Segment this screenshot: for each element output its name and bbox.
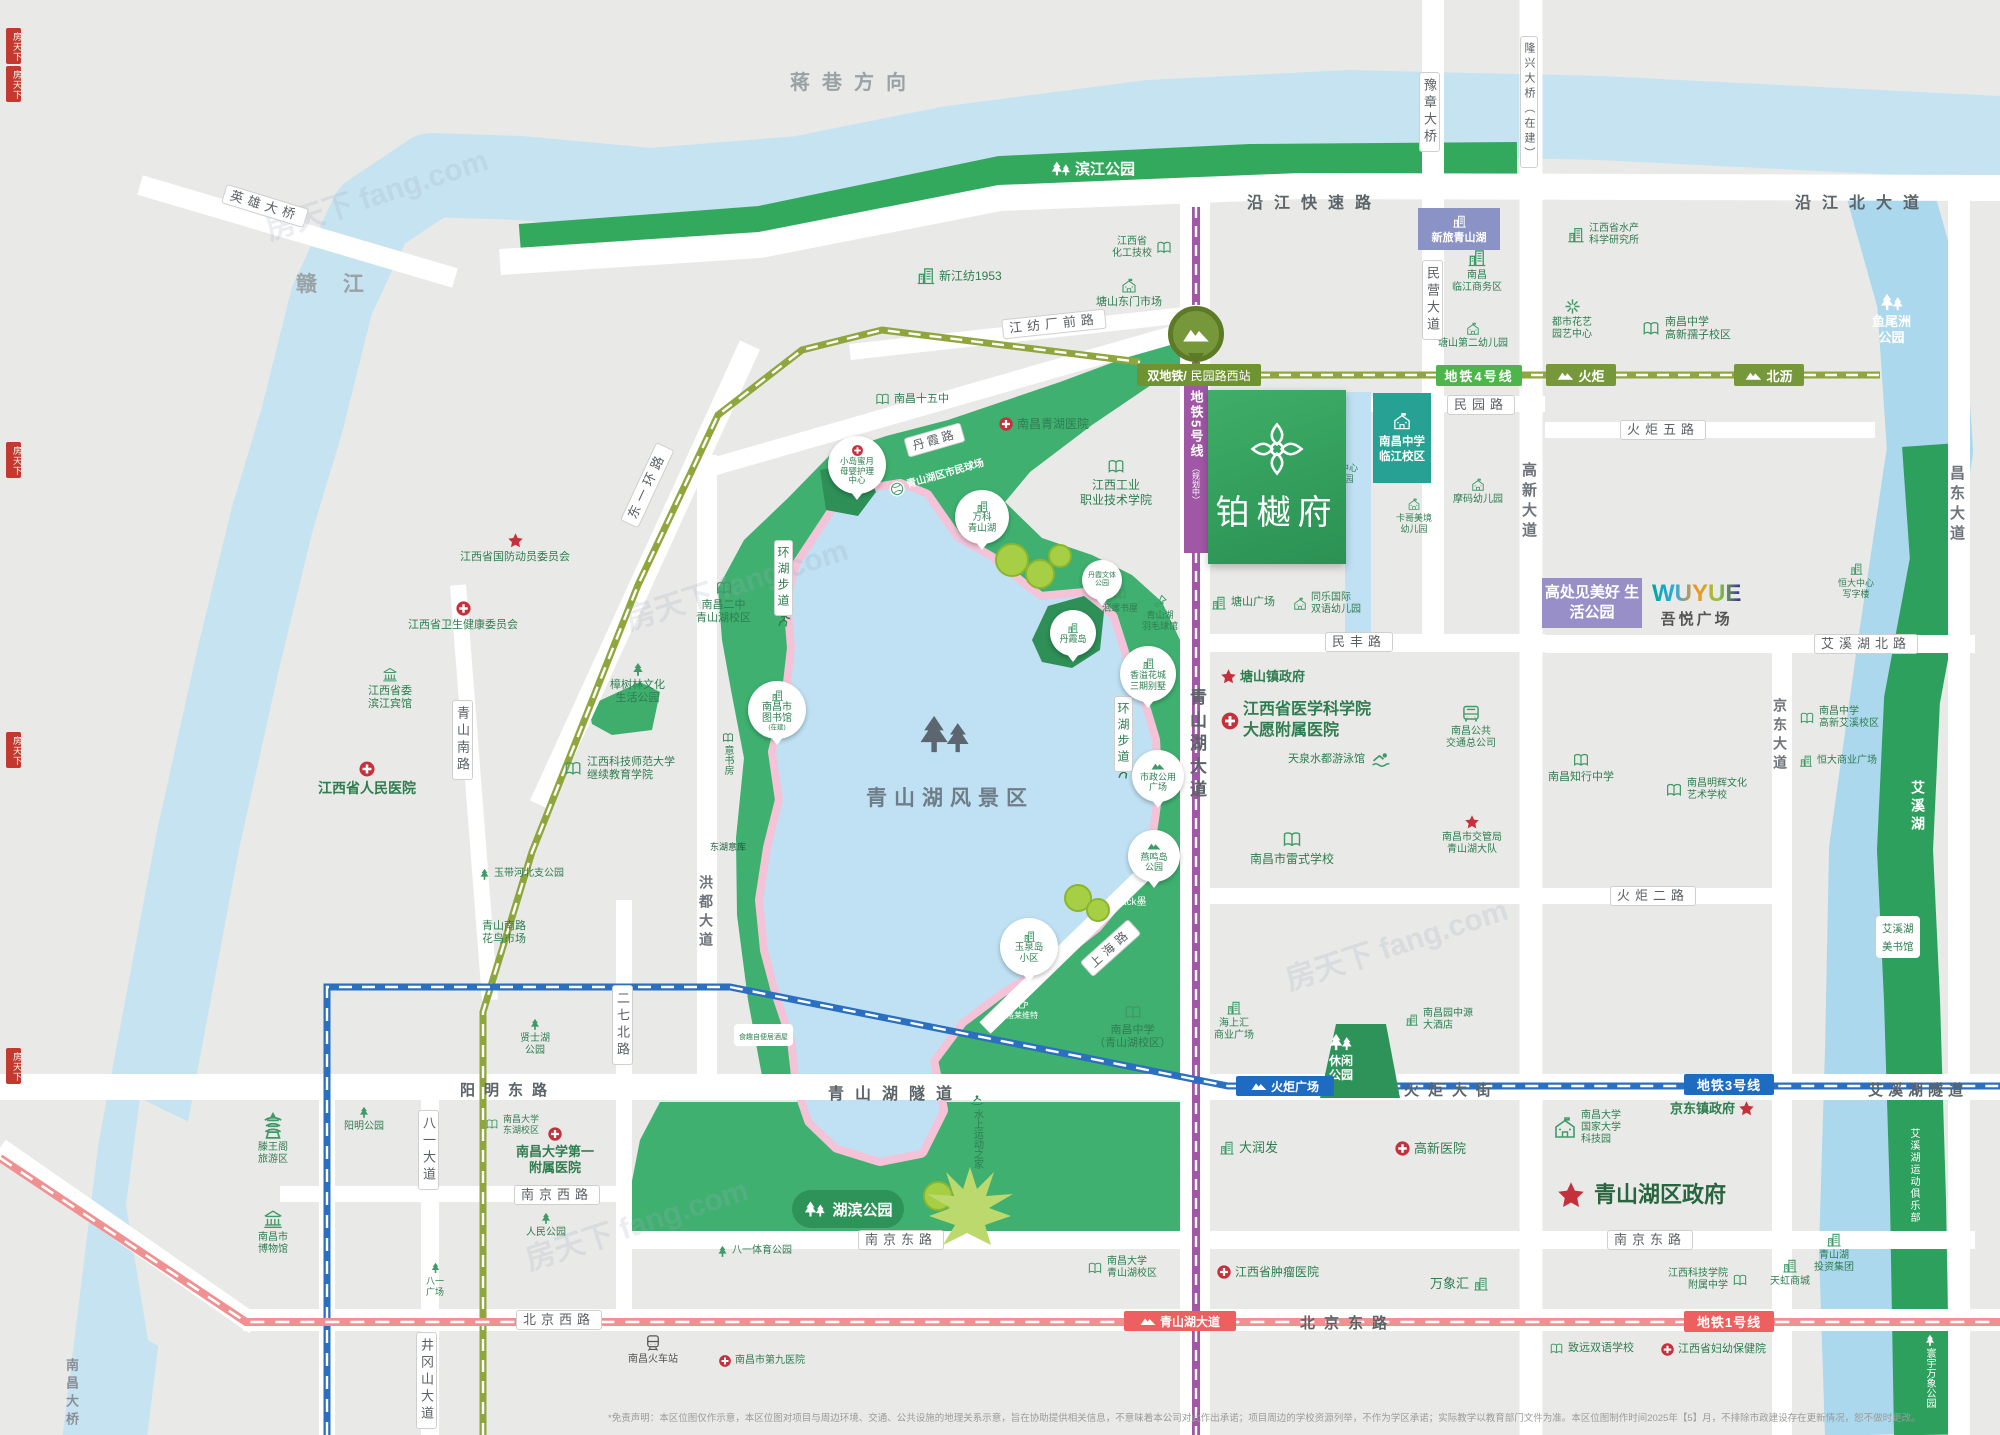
trees-icon (1050, 160, 1072, 177)
road-jingdong-ave: 京东大道 (1770, 698, 1790, 774)
building-icon (1849, 562, 1864, 576)
building-icon (1141, 657, 1156, 670)
poi-flower-market: 青山南路 花鸟市场 (482, 920, 526, 947)
project-name: 铂樾府 (1216, 485, 1339, 534)
poi-nc2: 南昌二中 青山湖校区 (696, 580, 751, 626)
poi-black-cafe: Black墨 (1112, 882, 1146, 909)
poi-tangshan-plaza: 塘山广场 (1210, 595, 1275, 611)
poi-yishufang: 意书房 (720, 732, 735, 775)
watermark-seal: 房天下 (6, 732, 21, 768)
binjiang-park-label: 滨江公园 (1050, 158, 1135, 179)
tree-icon (539, 1212, 553, 1225)
book-icon (1548, 1342, 1565, 1356)
mountain-icon (1251, 1081, 1267, 1091)
poi-tianhong: 天虹商城 (1770, 1258, 1810, 1288)
hubin-park-label: 湖滨公园 (792, 1190, 904, 1228)
station-huoju-square: 火炬广场 (1236, 1076, 1334, 1096)
mountain-icon (1140, 1316, 1156, 1326)
poi-hengda-center: 恒大中心 写字楼 (1838, 562, 1874, 600)
school-icon (1552, 1116, 1578, 1140)
building-icon (1066, 622, 1080, 634)
poi-jx-maternity: 江西省妇幼保健院 (1660, 1342, 1766, 1357)
book-icon (1280, 830, 1304, 850)
poi-bayi-sports: 八一体育公园 (716, 1245, 792, 1258)
poi-zhixing: 南昌知行中学 (1548, 752, 1614, 784)
poi-ncu-first-hosp: 南昌大学第一 附属医院 (516, 1126, 594, 1176)
school-icon (1407, 498, 1421, 511)
tree-icon (357, 1106, 371, 1119)
poi-nczx-aixi: 南昌中学 高新艾溪校区 (1798, 706, 1879, 730)
station-beili: 北沥 (1734, 364, 1804, 386)
red-cross-icon (547, 1126, 563, 1142)
aixihu-club-label: 艾溪湖运动俱乐部 (1906, 1128, 1921, 1224)
red-cross-icon (1220, 711, 1240, 731)
book-icon (562, 760, 584, 778)
red-cross-icon (358, 760, 376, 778)
road-yanjiang-express: 沿江快速路 (1247, 189, 1382, 213)
poi-tangshan-market: 塘山东门市场 (1096, 278, 1162, 309)
road-nanjing-west: 南京西路 (514, 1185, 600, 1205)
poi-jx-hotel: 江西省委 滨江宾馆 (368, 666, 412, 712)
road-changdong-ave: 昌东大道 (1946, 465, 1967, 545)
location-map: 蒋巷方向 赣 江 青山湖风景区 滨江公园 沿江快速路 沿江北大道 豫章大桥 隆兴… (0, 0, 2000, 1435)
book-icon (1086, 1261, 1104, 1276)
book-icon (1664, 782, 1684, 799)
trees-icon (1879, 292, 1905, 312)
direction-jiangxiang: 蒋巷方向 (790, 66, 918, 95)
road-nanjing-east-w: 南京东路 (858, 1230, 944, 1250)
poi-tangshan-gov: 塘山镇政府 (1220, 668, 1305, 685)
poi-nc-rail: 南昌火车站 (628, 1334, 678, 1366)
book-icon (1105, 458, 1127, 476)
school-icon (1292, 597, 1308, 611)
poi-yudaihe: 玉带河北支公园 (478, 868, 564, 881)
mountain-icon (1151, 760, 1165, 772)
poi-jx-people-hospital: 江西省人民医院 (318, 760, 416, 797)
train-icon (644, 1334, 662, 1352)
poi-nclib-pin: 南昌市 图书馆(在建) (748, 681, 806, 739)
poi-tongle-kg: 同乐国际 双语幼儿园 (1292, 592, 1361, 616)
shuttlecock-icon (1153, 594, 1168, 608)
poi-jingdong-gov: 京东镇政府 (1670, 1100, 1755, 1117)
red-cross-icon (718, 1354, 732, 1368)
tree-icon (478, 868, 491, 881)
station-qsh-avenue: 青山湖大道 (1124, 1311, 1236, 1331)
road-huoju2: 火炬二路 (1610, 886, 1696, 906)
slogan-banner: 高处见美好 生活公园 (1542, 578, 1642, 628)
road-yuzhang-bridge: 豫章大桥 (1419, 72, 1440, 152)
road-huoju-avenue: 火炬大街 (1404, 1079, 1500, 1100)
poi-tengwang: 滕王阁 旅游区 (258, 1112, 288, 1166)
poi-tianquan: 天泉水都游泳馆 (1288, 750, 1394, 770)
poi-xiaodao-pin: 小岛蜜月 母婴护理 中心 (828, 436, 886, 494)
metro-line4-label: 地铁4号线 (1436, 365, 1522, 386)
road-qsh-avenue: 青山湖大道 (1184, 688, 1209, 803)
road-minfeng: 民丰路 (1325, 632, 1393, 652)
poi-linjiang-biz: 南昌 临江商务区 (1452, 248, 1502, 294)
bus-icon (1460, 704, 1482, 724)
star-icon (1220, 668, 1237, 685)
mountain-icon (1745, 370, 1762, 381)
poi-nczx-linjiang-box: 南昌中学 临江校区 (1373, 393, 1431, 483)
scenic-area-label: 青山湖风景区 (866, 782, 1034, 812)
poi-jx-medical: 江西省医学科学院 大愿附属医院 (1220, 700, 1371, 742)
poi-yuquan-pin: 玉泉岛 小区 (1000, 918, 1058, 976)
poi-dushi-garden: 都市花艺 园艺中心 (1552, 298, 1592, 341)
poi-jxkj-high: 江西科技学院 附属中学 (1668, 1268, 1749, 1292)
building-icon (1466, 248, 1488, 268)
poi-xianshihu: 贤士湖 公园 (520, 1018, 550, 1057)
road-yanjiang-north: 沿江北大道 (1795, 189, 1930, 213)
poi-yuanzhongyuan: 南昌园中源 大酒店 (1404, 1008, 1473, 1032)
poi-renmin-park: 人民公园 (526, 1212, 566, 1239)
road-gaoxin-ave: 高新大道 (1518, 462, 1539, 542)
poi-ncu-park: 南昌大学 国家大学 科技园 (1552, 1110, 1621, 1147)
poi-donghu-yiku: 东湖意库 (710, 842, 746, 853)
pagoda-icon (258, 1112, 288, 1140)
mountain-icon (1182, 326, 1210, 343)
poi-nc-traffic: 南昌市交管局 青山湖大队 (1442, 814, 1502, 856)
road-qsh-tunnel: 青山湖隧道 (828, 1080, 963, 1104)
poi-haishanghui: 海上汇 商业广场 (1214, 1000, 1254, 1042)
book-icon (1571, 752, 1591, 769)
trees-icon (803, 1200, 827, 1218)
huanyu-park-label: 寰宇万象公园 (1922, 1334, 1937, 1408)
star-icon (507, 532, 524, 549)
disclaimer-text: *免责声明：本区位图仅作示意，本区位图对项目与周边环境、交通、公共设施的地理关系… (608, 1410, 1921, 1424)
poi-nczx-qsh: 南昌中学 （青山湖校区） (1094, 1004, 1171, 1051)
poi-tangshan2-kg: 塘山第二幼儿园 (1438, 322, 1508, 350)
poi-minghui: 南昌明辉文化 艺术学校 (1664, 778, 1747, 802)
poi-danxia-island-badge: 丹霞岛 (1050, 610, 1096, 656)
star-icon (1556, 1180, 1586, 1210)
star-icon (1738, 1100, 1755, 1117)
book-icon (714, 580, 734, 597)
road-huoju5: 火炬五路 (1620, 420, 1706, 440)
road-erqi-north: 二七北路 (612, 985, 633, 1065)
yuweizhou-park-label: 鱼尾洲 公园 (1872, 292, 1911, 346)
book-icon (1798, 711, 1816, 726)
metro-line1-label: 地铁1号线 (1684, 1311, 1774, 1332)
poi-xinlv-box: 新旅青山湖 (1418, 208, 1500, 250)
book-icon (1155, 240, 1173, 256)
poi-gelai-cafe: 格莱维特 (1006, 998, 1038, 1021)
tree-icon (716, 1245, 729, 1258)
building-icon (1022, 930, 1037, 943)
poi-water-sports: 水上运动之家 (966, 1092, 988, 1169)
tree-icon (429, 1262, 442, 1274)
poi-leishi: 南昌市雷式学校 (1250, 830, 1334, 867)
red-cross-icon (455, 600, 472, 617)
road-jinggangshan: 井冈山大道 (416, 1332, 437, 1429)
tree-icon (1923, 1334, 1937, 1347)
tree-icon (630, 662, 646, 677)
mountain-icon (1557, 370, 1574, 381)
poi-badminton: 青山湖 羽毛球馆 (1142, 594, 1178, 632)
school-icon (1120, 278, 1138, 294)
poi-nczx-ruzi: 南昌中学 高新孺子校区 (1640, 316, 1731, 343)
watermark-seal: 房天下 (6, 1048, 21, 1084)
road-beijing-east: 北京东路 (1300, 1312, 1396, 1333)
building-icon (1798, 754, 1814, 768)
aixihu-lake-label: 艾溪湖 (1908, 780, 1928, 834)
road-minying-ave: 民营大道 (1422, 260, 1443, 340)
poi-kage-kg: 卡哥美境 幼儿园 (1396, 498, 1432, 535)
poi-yangming-park: 阳明公园 (344, 1106, 384, 1133)
school-icon (1391, 412, 1413, 431)
poi-darunfa: 大润发 (1218, 1140, 1278, 1156)
poi-nc9-hospital: 南昌市第九医院 (718, 1354, 805, 1368)
building-icon (1225, 1000, 1243, 1016)
poi-jx-cancer: 江西省肿瘤医院 (1216, 1264, 1319, 1280)
station-minyuanluxi-label: 双地铁/民园路西站 (1137, 364, 1261, 386)
building-icon (1566, 226, 1586, 244)
star-icon (1464, 814, 1480, 830)
building-icon (916, 266, 936, 286)
project-logo-box: 铂樾府 (1208, 390, 1346, 564)
poi-jx-defense: 江西省国防动员委员会 (460, 532, 570, 564)
road-bayi-ave: 八一大道 (418, 1110, 439, 1190)
book-icon (1122, 1004, 1144, 1022)
road-aixihu-north: 艾溪湖北路 (1814, 634, 1918, 654)
building-icon (1825, 1232, 1843, 1248)
poi-moma-kg: 摩码幼儿园 (1453, 478, 1503, 506)
poi-jx-poly: 江西工业 职业技术学院 (1080, 458, 1152, 507)
road-minyuan: 民园路 (1447, 395, 1515, 415)
poi-jxstnu: 江西科技师范大学 继续教育学院 (562, 756, 675, 783)
red-cross-icon (1660, 1342, 1675, 1357)
school-icon (1470, 478, 1486, 492)
road-qingshan-south: 青山南路 (452, 700, 473, 780)
metro-line3-label: 地铁3号线 (1684, 1074, 1774, 1095)
road-nanchang-bridge: 南昌大桥 (62, 1358, 81, 1430)
minyuanluxi-station-pin (1168, 306, 1224, 362)
mountain-icon (1147, 840, 1161, 852)
wuyue-logo: WUYUE吾悦广场 (1652, 580, 1741, 629)
poi-nc15: 南昌十五中 (874, 392, 949, 407)
red-cross-icon (1394, 1140, 1411, 1157)
book-icon (1640, 320, 1662, 338)
poi-qsh-gov: 青山湖区政府 (1556, 1180, 1726, 1210)
road-hongdu-ave: 洪都大道 (696, 875, 716, 951)
trees-icon (1328, 1032, 1354, 1052)
road-aixihu-tunnel: 艾溪湖隧道 (1868, 1079, 1968, 1100)
poi-ncu-qsh: 南昌大学 青山湖校区 (1086, 1256, 1157, 1280)
poi-nc-bus: 南昌公共 交通总公司 (1446, 704, 1496, 750)
red-cross-icon (1216, 1264, 1232, 1280)
poi-aixihu-library: 艾溪湖 美书馆 (1876, 916, 1920, 958)
poi-qinghu-hospital: 南昌青湖医院 (998, 416, 1089, 432)
station-huoju: 火炬 (1546, 364, 1616, 386)
museum-icon (380, 666, 400, 683)
watermark-seal: 房天下 (6, 28, 21, 64)
building-icon (1781, 1258, 1799, 1274)
river-ganjiang-label: 赣 江 (296, 268, 374, 298)
building-icon (1404, 1013, 1420, 1027)
poi-wanxianghui: 万象汇 (1430, 1276, 1490, 1292)
road-nanjing-east-e: 南京东路 (1607, 1230, 1693, 1250)
poi-yanming-pin: 燕鸣岛 公园 (1128, 830, 1180, 882)
building-icon (1210, 595, 1228, 611)
poi-jx-chem: 江西省 化工技校 (1112, 236, 1173, 260)
road-longxing-bridge: 隆兴大桥（在建） (1520, 36, 1538, 168)
book-icon (874, 392, 891, 407)
trail-label-west: 环湖步道 (774, 540, 793, 616)
coffee-cup-icon (1016, 998, 1029, 1010)
watermark-seal: 房天下 (6, 66, 21, 102)
building-icon (975, 500, 990, 513)
poi-shiqu: 食趣自便居酒屋 (734, 1024, 793, 1046)
poi-hengda-plaza: 恒大商业广场 (1798, 754, 1877, 768)
rowing-icon (966, 1092, 988, 1108)
pinwheel-flower-icon (1564, 298, 1581, 315)
building-icon (1218, 1140, 1236, 1156)
building-icon (1451, 214, 1468, 229)
museum-icon (260, 1208, 286, 1230)
building-icon (1472, 1276, 1490, 1292)
poi-zhiyuan: 致远双语学校 (1548, 1342, 1634, 1356)
book-icon (721, 732, 735, 744)
poi-xinjiangfang: 新江纺1953 (916, 266, 1002, 286)
poi-nc-museum: 南昌市 博物馆 (258, 1208, 288, 1256)
road-beijing-west: 北京西路 (516, 1310, 602, 1330)
school-icon (1465, 322, 1481, 336)
book-icon (1731, 1273, 1749, 1288)
red-cross-icon (998, 416, 1014, 432)
poi-zhangshulin: 樟树林文化 生活公园 (610, 662, 665, 706)
poi-gaoxin-hospital: 高新医院 (1394, 1140, 1466, 1157)
poi-vanke-pin: 万科 青山湖 (955, 490, 1009, 544)
watermark-seal: 房天下 (6, 442, 21, 478)
building-icon (770, 689, 785, 702)
road-yangming-east: 阳明东路 (460, 1079, 556, 1100)
poi-danxia-sports-pin: 丹霞文体 公园 (1082, 560, 1122, 600)
poi-shizheng-pin: 市政公用 广场 (1132, 750, 1184, 802)
book-icon (484, 1118, 500, 1131)
swimmer-icon (1368, 750, 1394, 770)
metro-line5-label: 地铁5号线（规划中） (1185, 390, 1207, 509)
poi-bayi-square: 八一 广场 (426, 1262, 444, 1298)
poi-jx-health: 江西省卫生健康委员会 (408, 600, 518, 632)
tree-icon (528, 1018, 542, 1031)
project-flower-icon (1249, 421, 1305, 477)
poi-qsh-invest: 青山湖 投资集团 (1814, 1232, 1854, 1274)
trail-label-east: 环湖步道 (1114, 696, 1133, 772)
poi-jx-aquatic: 江西省水产 科学研究所 (1566, 223, 1639, 247)
coffee-cup-icon (1122, 882, 1137, 896)
poi-xiangyi-pin: 香溢花城 三期别墅 (1120, 646, 1176, 702)
